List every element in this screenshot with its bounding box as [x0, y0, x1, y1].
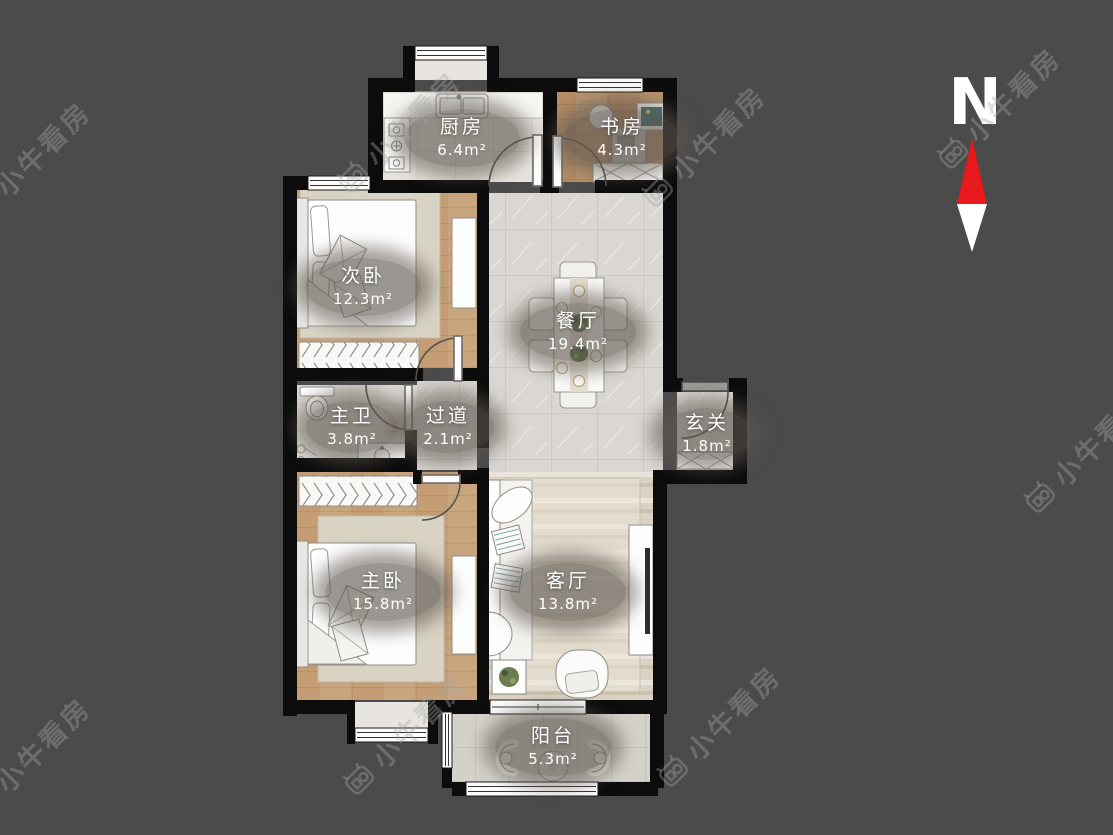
kitchen-sink-icon: [436, 94, 488, 118]
master-bedroom-cabinet: [452, 556, 476, 654]
balcony-side-window: [442, 712, 452, 768]
master-bay-floor: [355, 702, 428, 730]
compass-needle: [957, 138, 987, 252]
hallway-floor: [417, 381, 477, 470]
balcony-window: [466, 782, 598, 796]
living-plant-icon: [492, 660, 526, 694]
kitchen-bay-window: [415, 46, 487, 60]
compass-north-arrow: [957, 138, 987, 204]
second-bedroom-wardrobe: [299, 342, 419, 370]
second-bedroom-bed-icon: [295, 198, 416, 328]
second-bedroom-window: [308, 176, 370, 190]
kitchen-bay-floor: [415, 58, 487, 80]
master-bed-icon: [295, 541, 416, 667]
second-bedroom-cabinet: [452, 218, 476, 308]
tv-cabinet: [629, 525, 653, 655]
study-window: [577, 78, 643, 92]
compass-north-label: N: [948, 71, 1002, 135]
tv-icon: [645, 548, 650, 634]
master-bay-window: [355, 728, 428, 742]
sofa-icon: [485, 480, 538, 660]
floor-plan: [0, 0, 1113, 835]
compass-south-arrow: [957, 204, 987, 252]
study-picture: [637, 103, 666, 130]
balcony-sliding-door: [490, 700, 586, 714]
entry-shoe-cabinet: [677, 452, 735, 469]
floorplan-canvas: 厨房 6.4m² 书房 4.3m² 次卧 12.3m² 餐厅 19.4m² 主卫…: [0, 0, 1113, 835]
armchair-icon: [556, 650, 608, 698]
balcony-table-icon: [538, 751, 568, 781]
master-bedroom-wardrobe: [299, 476, 417, 506]
